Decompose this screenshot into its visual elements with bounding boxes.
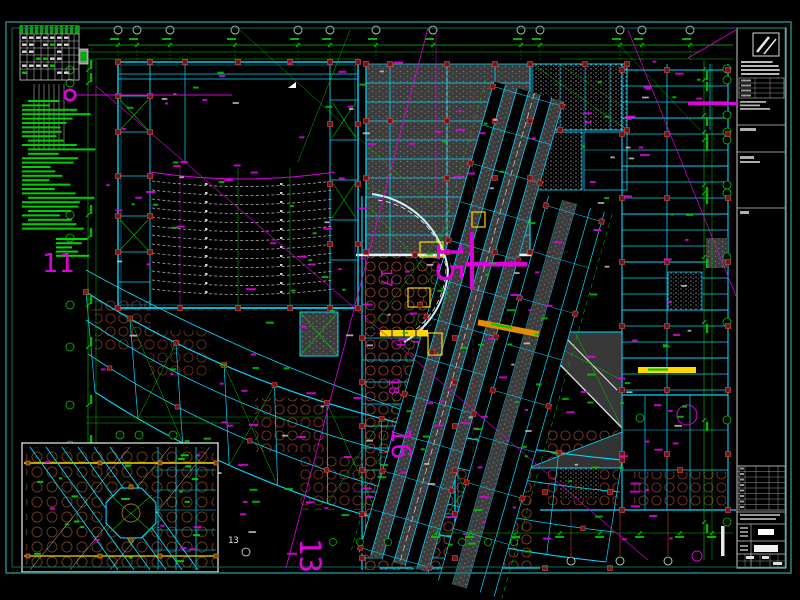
detail-inset	[22, 443, 218, 572]
seating-rows	[152, 181, 334, 295]
axis-label-16: 16	[385, 427, 416, 460]
cad-viewport: 11 17 18 15 16 13 13	[0, 0, 800, 600]
axis-label-15: 15	[428, 240, 469, 283]
grid-bubble-label-13: 13	[228, 536, 239, 546]
general-notes-text	[22, 84, 232, 257]
axis-label-13: 13	[293, 538, 327, 573]
axis-label-18: 18	[385, 378, 401, 395]
legend-table	[20, 26, 88, 80]
axis-label-17: 17	[377, 268, 396, 287]
axis-label-11: 11	[42, 249, 75, 279]
auditorium-block	[118, 62, 358, 356]
cad-floor-plan-canvas: 11 17 18 15 16 13 13	[0, 0, 800, 600]
